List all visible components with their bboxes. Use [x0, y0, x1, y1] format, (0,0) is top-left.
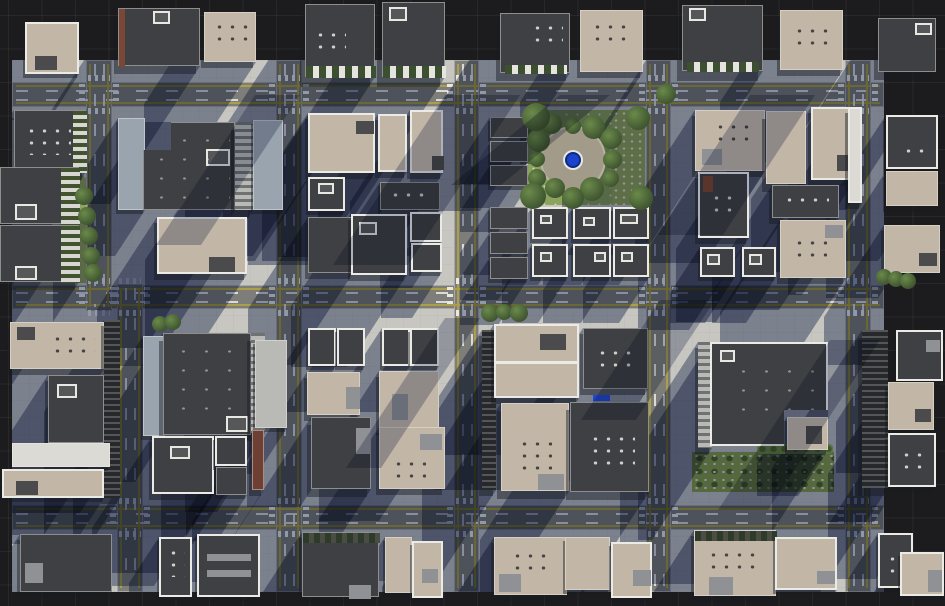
building[interactable]	[152, 436, 214, 494]
building-roof-detail	[389, 7, 407, 21]
building[interactable]	[532, 244, 568, 277]
building-roof-detail	[806, 426, 822, 444]
building-roof-detail	[119, 9, 125, 67]
lane-marking	[866, 64, 868, 588]
crosswalk	[303, 84, 309, 105]
crosswalk	[303, 287, 309, 307]
building[interactable]	[308, 217, 353, 273]
crosswalk	[872, 84, 878, 105]
crosswalk	[648, 531, 669, 537]
building-roof-detail	[703, 176, 713, 192]
building-roof-detail	[594, 252, 606, 262]
building-roof-detail	[383, 66, 446, 78]
building[interactable]	[780, 220, 846, 278]
building-roof-detail	[314, 29, 346, 57]
building[interactable]	[490, 232, 528, 254]
building[interactable]	[410, 212, 442, 242]
building-roof-detail	[25, 563, 43, 583]
building[interactable]	[500, 13, 570, 73]
lane-marking	[666, 64, 668, 588]
building-roof-detail	[589, 433, 635, 467]
building-roof-detail	[499, 574, 521, 592]
building-roof-detail	[902, 145, 926, 159]
tree	[75, 187, 93, 205]
building-roof-detail	[531, 22, 563, 46]
crosswalk	[847, 278, 869, 284]
building[interactable]	[0, 225, 79, 282]
building-roof-detail	[783, 194, 829, 210]
building-roof-detail	[209, 257, 235, 272]
crosswalk	[456, 108, 477, 114]
crosswalk	[847, 531, 869, 537]
building-roof-detail	[817, 571, 835, 584]
building-roof-detail	[540, 215, 552, 224]
tree	[522, 103, 550, 131]
building[interactable]	[695, 110, 765, 171]
crosswalk	[456, 75, 477, 81]
crosswalk	[278, 498, 300, 504]
lane-marking	[284, 64, 286, 588]
lane-marking	[103, 64, 105, 307]
crosswalk	[269, 507, 275, 528]
building[interactable]	[565, 537, 610, 590]
building-roof-detail	[346, 387, 360, 409]
lane-marking	[297, 64, 299, 588]
building[interactable]	[2, 469, 104, 498]
crosswalk	[639, 84, 645, 105]
crosswalk	[456, 498, 477, 504]
building-roof-detail	[620, 214, 638, 224]
tree	[603, 150, 622, 169]
building-roof-detail	[15, 204, 37, 220]
building[interactable]	[410, 328, 439, 366]
crosswalk	[672, 507, 678, 528]
lawn-garden	[692, 452, 834, 492]
building-roof-detail	[915, 23, 932, 35]
building[interactable]	[118, 8, 200, 66]
building[interactable]	[878, 18, 936, 72]
crosswalk	[648, 108, 669, 114]
crosswalk	[269, 84, 275, 105]
building[interactable]	[494, 537, 567, 595]
building[interactable]	[694, 530, 776, 596]
building-roof-detail	[710, 192, 740, 220]
building[interactable]	[573, 207, 611, 239]
building[interactable]	[215, 436, 247, 466]
building[interactable]	[159, 537, 192, 597]
building[interactable]	[204, 12, 256, 62]
building[interactable]	[787, 417, 828, 450]
crosswalk	[278, 531, 300, 537]
building-roof-detail	[25, 125, 71, 155]
building-roof-detail	[172, 342, 242, 422]
crosswalk	[447, 84, 453, 105]
building-roof-detail	[356, 428, 370, 454]
building-roof-detail	[511, 550, 551, 572]
building[interactable]	[410, 110, 443, 173]
crosswalk	[269, 287, 275, 307]
building[interactable]	[896, 330, 943, 381]
building[interactable]	[0, 167, 79, 224]
building-roof-detail	[61, 226, 80, 283]
building-roof-detail	[306, 66, 376, 78]
crosswalk	[119, 278, 141, 284]
lane-marking	[138, 288, 140, 588]
building[interactable]	[382, 328, 410, 366]
building-roof-detail	[432, 156, 444, 170]
crosswalk	[847, 75, 869, 81]
building[interactable]	[12, 443, 110, 467]
tree	[626, 106, 650, 130]
building[interactable]	[157, 217, 247, 274]
building[interactable]	[385, 537, 412, 593]
building-roof-detail	[540, 252, 552, 262]
building-roof-detail	[35, 56, 57, 70]
building-roof-detail	[540, 334, 566, 350]
building[interactable]	[532, 207, 568, 239]
building[interactable]	[766, 111, 806, 184]
crosswalk	[278, 75, 300, 81]
building-roof-detail	[720, 350, 735, 362]
crosswalk	[456, 278, 477, 284]
crosswalk	[303, 507, 309, 528]
crosswalk	[639, 287, 645, 307]
lane-marking	[457, 64, 459, 588]
building-roof-detail	[709, 577, 733, 595]
building-roof-detail	[900, 449, 928, 471]
building-roof-detail	[505, 65, 567, 74]
tree	[601, 128, 622, 149]
crosswalk	[838, 287, 844, 307]
building[interactable]	[490, 207, 528, 229]
building[interactable]	[379, 371, 439, 429]
building[interactable]	[20, 534, 112, 592]
building[interactable]	[490, 141, 528, 162]
building[interactable]	[337, 328, 365, 366]
building-roof-detail	[749, 254, 762, 265]
crosswalk	[672, 287, 678, 307]
building-roof-detail	[714, 121, 750, 143]
building-roof-detail	[392, 394, 408, 420]
building-roof-detail	[51, 333, 95, 359]
tree	[545, 178, 565, 198]
building-roof-detail	[356, 121, 374, 134]
building[interactable]	[772, 185, 839, 218]
building[interactable]	[698, 172, 749, 238]
building[interactable]	[700, 247, 735, 277]
crosswalk	[447, 507, 453, 528]
crosswalk	[119, 498, 141, 504]
building[interactable]	[302, 532, 379, 597]
building-roof-detail	[170, 446, 190, 459]
building-roof-detail	[793, 237, 827, 259]
lane-marking	[471, 64, 473, 588]
building-roof-detail	[928, 570, 942, 592]
building-roof-detail	[57, 384, 77, 398]
building[interactable]	[501, 403, 569, 491]
building[interactable]	[613, 244, 649, 277]
building[interactable]	[862, 330, 888, 488]
building[interactable]	[742, 247, 776, 277]
building-roof-detail	[915, 409, 931, 422]
building[interactable]	[10, 322, 104, 369]
building[interactable]	[412, 541, 443, 598]
tree	[900, 273, 916, 289]
lane-marking	[654, 64, 656, 588]
building[interactable]	[378, 114, 407, 172]
building[interactable]	[307, 372, 360, 415]
building-roof-detail	[591, 21, 631, 47]
building[interactable]	[163, 333, 251, 435]
building-roof-detail	[633, 570, 651, 586]
building[interactable]	[104, 320, 120, 498]
tree	[510, 304, 528, 322]
crosswalk	[88, 310, 110, 316]
tree	[602, 170, 619, 187]
lane-marking	[293, 64, 295, 588]
tree	[78, 207, 96, 225]
building[interactable]	[490, 257, 528, 279]
crosswalk	[110, 507, 116, 528]
crosswalk	[79, 84, 85, 105]
building[interactable]	[494, 362, 579, 398]
building[interactable]	[308, 177, 345, 211]
building[interactable]	[494, 324, 579, 363]
building-roof-detail	[359, 222, 377, 235]
park-fountain	[565, 152, 581, 168]
building-roof-detail	[17, 327, 35, 340]
tree	[80, 227, 98, 245]
building-roof-detail	[167, 547, 185, 577]
tree	[84, 264, 102, 282]
lane-marking	[462, 64, 464, 588]
crosswalk	[456, 310, 477, 316]
building[interactable]	[253, 120, 283, 210]
building[interactable]	[573, 244, 611, 277]
lane-marking	[649, 64, 651, 588]
building-roof-detail	[707, 254, 720, 265]
building-roof-detail	[213, 21, 249, 49]
building-roof-detail	[420, 434, 442, 450]
tree	[529, 151, 545, 167]
building-roof-detail	[15, 266, 37, 280]
crosswalk	[456, 531, 477, 537]
building[interactable]	[379, 427, 445, 489]
building[interactable]	[886, 115, 938, 169]
crosswalk	[110, 287, 116, 307]
crosswalk	[838, 507, 844, 528]
building-roof-detail	[153, 11, 170, 24]
building-roof-detail	[793, 25, 833, 51]
building-roof-detail	[919, 253, 937, 266]
crosswalk	[648, 498, 669, 504]
building[interactable]	[611, 542, 652, 598]
building[interactable]	[48, 375, 104, 443]
building-roof-detail	[207, 570, 251, 577]
building[interactable]	[682, 5, 763, 71]
building[interactable]	[308, 328, 336, 366]
building[interactable]	[197, 534, 260, 597]
building[interactable]	[888, 433, 936, 487]
building[interactable]	[255, 340, 287, 428]
building[interactable]	[848, 107, 862, 203]
tree	[656, 84, 676, 104]
crosswalk	[847, 310, 869, 316]
building[interactable]	[698, 342, 712, 448]
tree	[520, 183, 546, 209]
tree	[82, 247, 100, 265]
building-roof-detail	[422, 569, 438, 583]
building[interactable]	[570, 402, 649, 492]
building-roof-detail	[389, 189, 429, 203]
crosswalk	[648, 278, 669, 284]
building[interactable]	[305, 4, 375, 77]
crosswalk	[639, 507, 645, 528]
building-roof-detail	[207, 554, 251, 561]
crosswalk	[648, 310, 669, 316]
building[interactable]	[14, 110, 86, 172]
building[interactable]	[888, 382, 934, 430]
crosswalk	[872, 507, 878, 528]
crosswalk	[838, 84, 844, 105]
building[interactable]	[380, 182, 440, 210]
crosswalk	[278, 108, 300, 114]
building-roof-detail	[707, 549, 757, 571]
crosswalk	[278, 278, 300, 284]
building[interactable]	[311, 417, 371, 489]
building-roof-detail	[689, 8, 706, 21]
building[interactable]	[411, 243, 442, 272]
lane-marking	[134, 288, 136, 588]
crosswalk	[447, 287, 453, 307]
building-roof-detail	[226, 416, 248, 432]
crosswalk	[847, 498, 869, 504]
building-roof-detail	[596, 347, 632, 373]
tree	[562, 187, 584, 209]
building[interactable]	[490, 165, 528, 186]
building[interactable]	[25, 22, 79, 74]
building[interactable]	[382, 2, 445, 77]
lane-marking	[107, 64, 109, 307]
building-roof-detail	[518, 438, 552, 472]
building[interactable]	[252, 430, 264, 490]
building[interactable]	[308, 113, 375, 173]
building[interactable]	[118, 118, 145, 210]
lane-marking	[120, 288, 122, 588]
crosswalk	[113, 84, 119, 105]
building-roof-detail	[16, 481, 38, 495]
building[interactable]	[886, 171, 938, 206]
crosswalk	[119, 310, 141, 316]
building-roof-detail	[583, 217, 595, 226]
crosswalk	[872, 287, 878, 307]
building-roof-detail	[538, 474, 564, 490]
tree	[629, 186, 653, 210]
scene-viewport[interactable]	[0, 0, 945, 606]
building[interactable]	[900, 552, 944, 596]
building[interactable]	[593, 395, 610, 401]
building-roof-detail	[318, 183, 334, 194]
lane-marking	[663, 64, 665, 588]
building-roof-detail	[825, 225, 843, 238]
crosswalk	[88, 75, 110, 81]
lane-marking	[125, 288, 127, 588]
building-roof-detail	[702, 149, 722, 165]
crosswalk	[278, 310, 300, 316]
lane-marking	[474, 64, 476, 588]
building-roof-detail	[303, 533, 380, 543]
tree	[165, 314, 181, 330]
crosswalk	[648, 75, 669, 81]
crosswalk	[480, 507, 486, 528]
building-roof-detail	[621, 252, 633, 262]
building-roof-detail	[73, 111, 87, 173]
crosswalk	[144, 287, 150, 307]
building-roof-detail	[687, 62, 759, 72]
building-roof-detail	[206, 149, 230, 166]
building[interactable]	[580, 10, 643, 72]
building-roof-detail	[349, 585, 371, 599]
lane-marking	[862, 64, 864, 588]
crosswalk	[79, 287, 85, 307]
building[interactable]	[351, 214, 407, 275]
crosswalk	[119, 531, 141, 537]
building[interactable]	[884, 225, 940, 273]
crosswalk	[144, 507, 150, 528]
building[interactable]	[235, 122, 253, 210]
building[interactable]	[780, 10, 843, 70]
building[interactable]	[613, 207, 649, 239]
building-roof-detail	[392, 458, 426, 478]
building[interactable]	[775, 537, 837, 590]
crosswalk	[480, 84, 486, 105]
building-roof-detail	[695, 531, 777, 541]
building-roof-detail	[926, 340, 940, 352]
crosswalk	[88, 108, 110, 114]
building[interactable]	[216, 467, 247, 495]
building[interactable]	[583, 328, 648, 389]
building[interactable]	[143, 336, 165, 436]
tree	[565, 118, 581, 134]
